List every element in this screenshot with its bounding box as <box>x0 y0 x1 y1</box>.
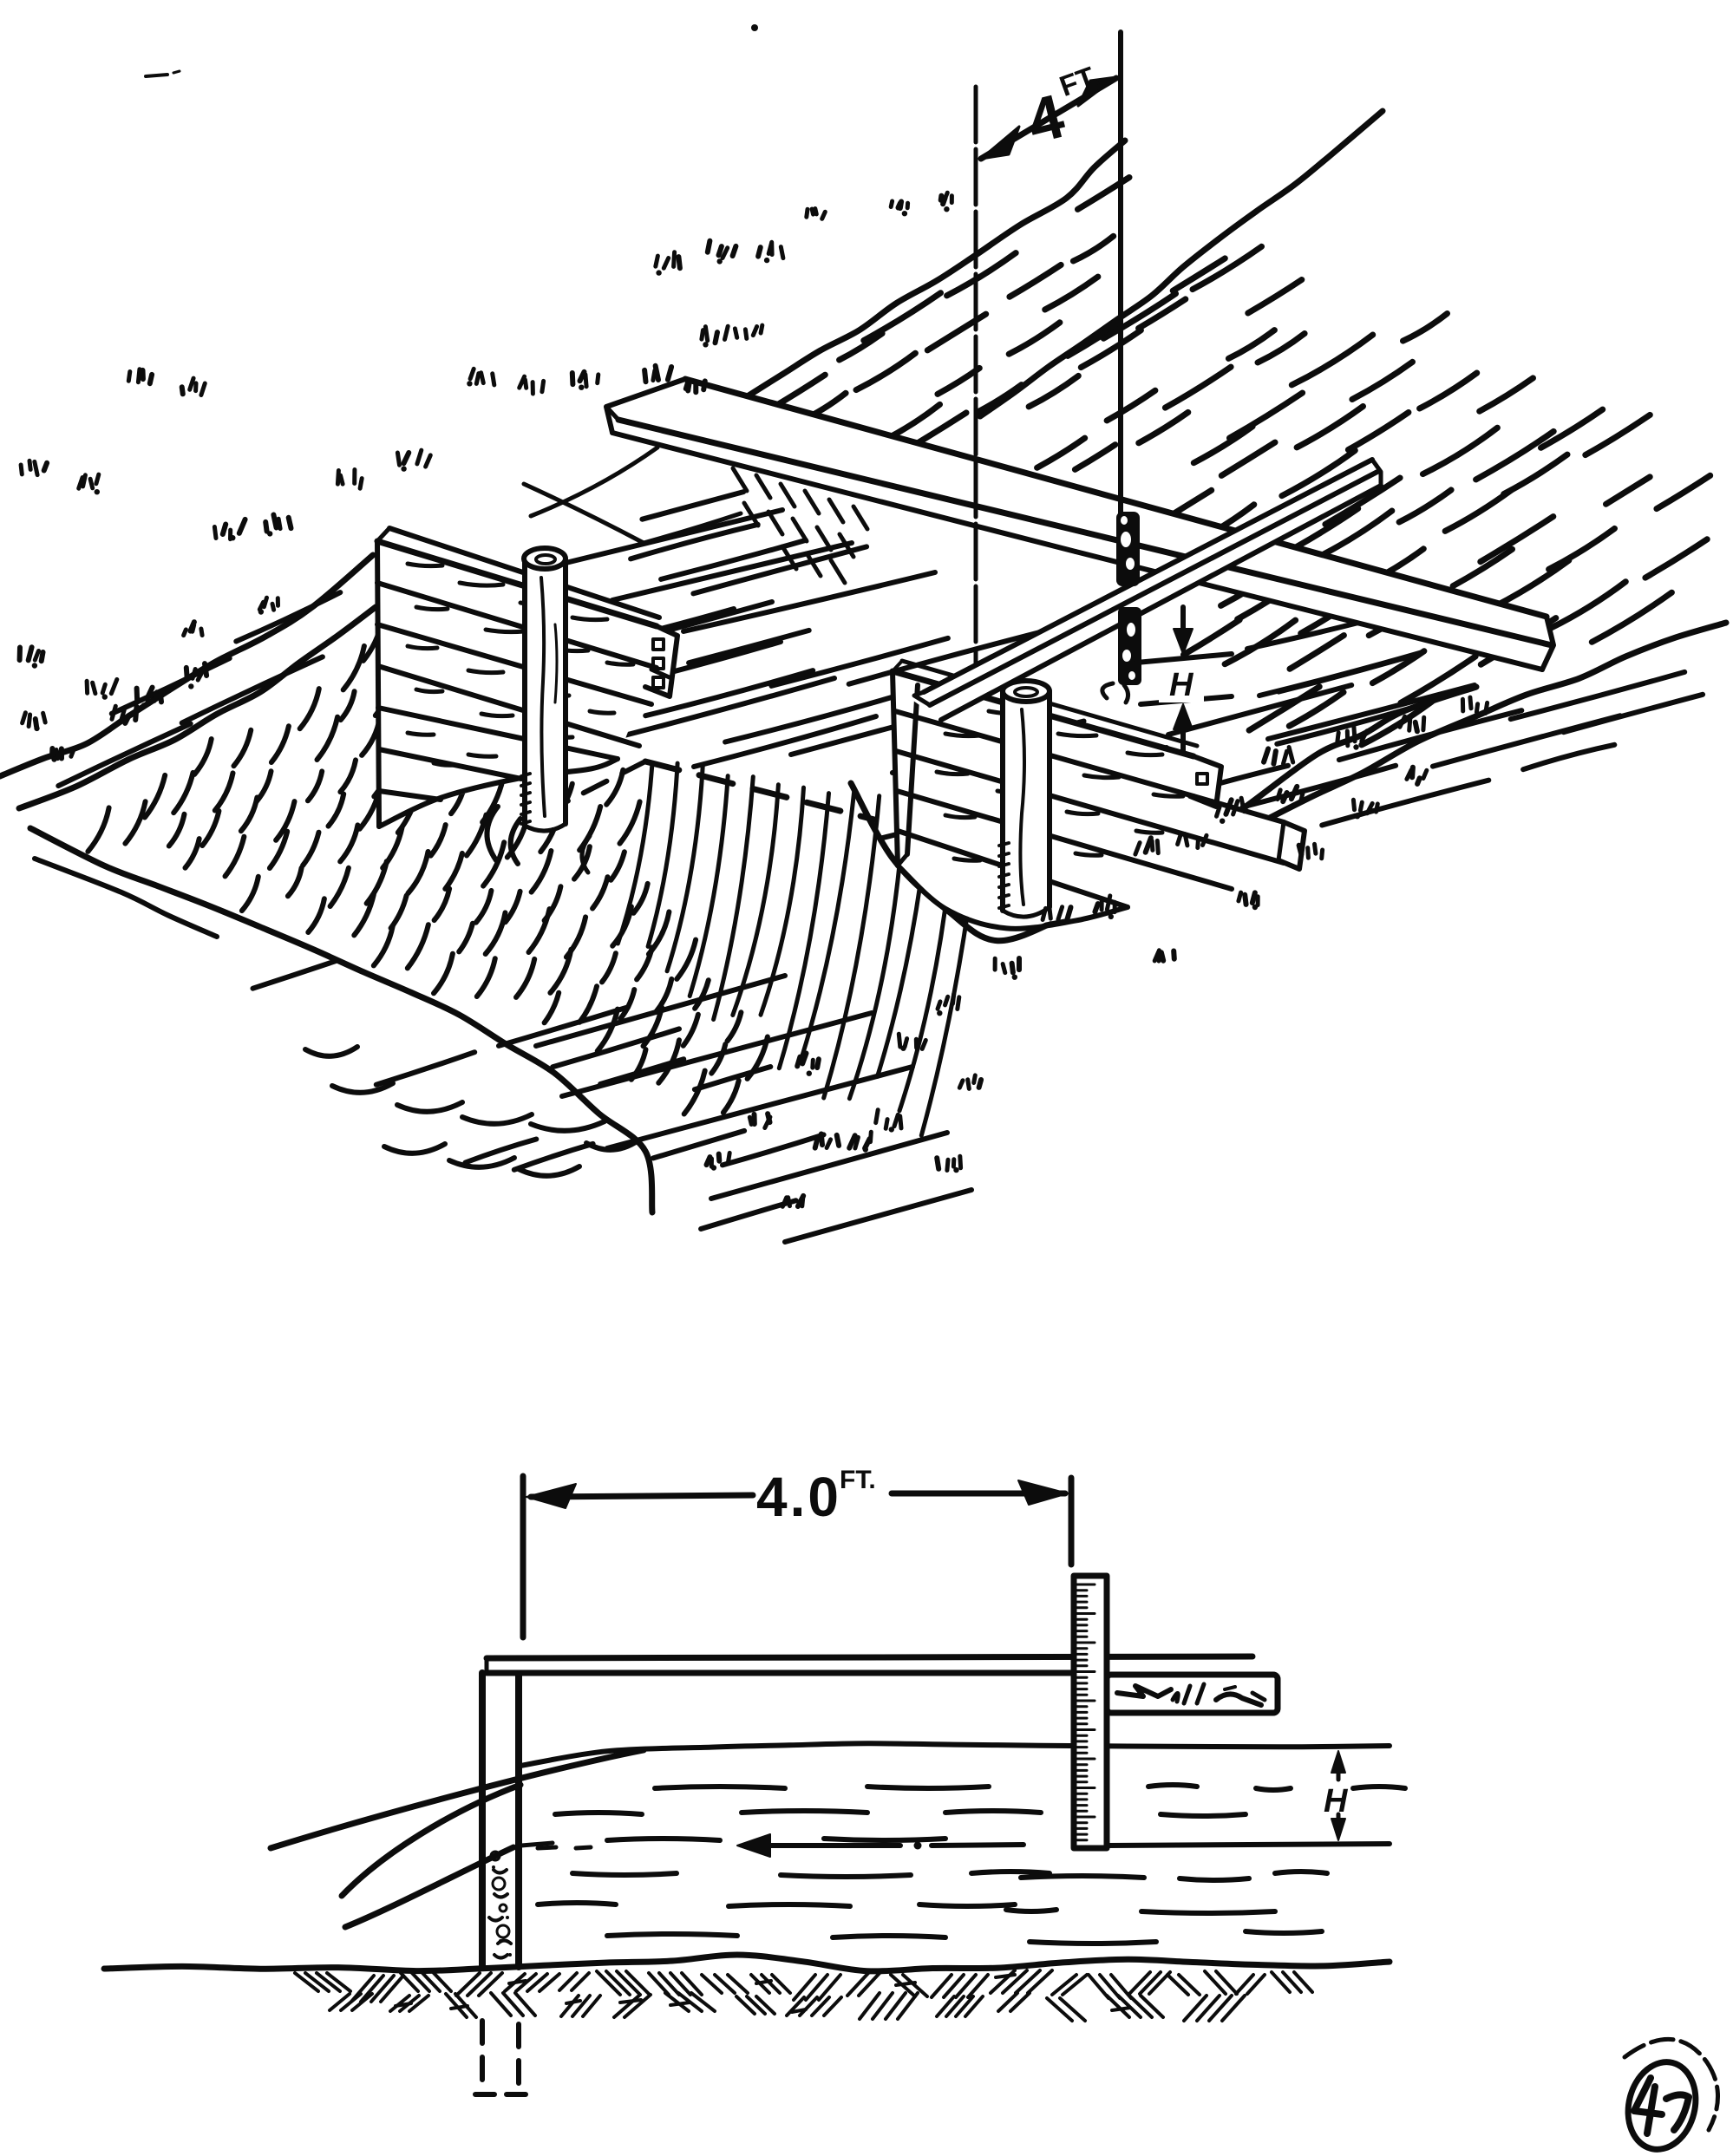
svg-text:FT.: FT. <box>840 1466 876 1494</box>
svg-text:H: H <box>1324 1783 1349 1820</box>
svg-text:4.0: 4.0 <box>756 1466 841 1528</box>
svg-text:H: H <box>1169 667 1194 703</box>
